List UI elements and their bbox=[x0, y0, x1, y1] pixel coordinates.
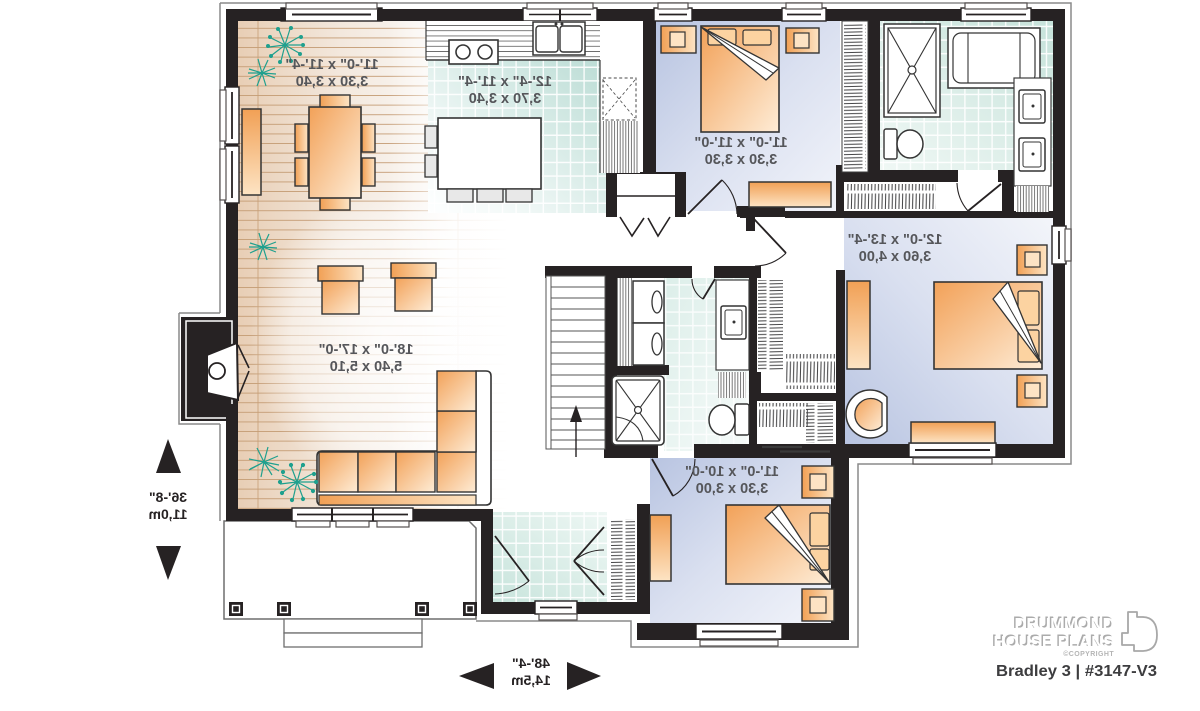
svg-text:3,30 x 3,00: 3,30 x 3,00 bbox=[696, 481, 769, 497]
svg-text:3,30 x 3,30: 3,30 x 3,30 bbox=[705, 152, 778, 168]
svg-text:©COPYRIGHT: ©COPYRIGHT bbox=[1063, 650, 1114, 658]
svg-text:3,30 x 3,40: 3,30 x 3,40 bbox=[296, 74, 369, 90]
svg-text:3,70 x 3,40: 3,70 x 3,40 bbox=[469, 91, 542, 107]
svg-text:HOUSE PLANS: HOUSE PLANS bbox=[994, 633, 1115, 652]
svg-text:18'-0" x 17'-0": 18'-0" x 17'-0" bbox=[319, 342, 414, 358]
svg-text:11,0m: 11,0m bbox=[149, 506, 188, 522]
svg-text:3,60 x 4,00: 3,60 x 4,00 bbox=[859, 249, 932, 265]
svg-text:12'-4" x 11'-4": 12'-4" x 11'-4" bbox=[458, 74, 552, 90]
svg-text:Bradley 3 | #3147-V3: Bradley 3 | #3147-V3 bbox=[996, 663, 1157, 680]
svg-text:14,5m: 14,5m bbox=[511, 672, 551, 688]
svg-text:11'-0" x 11'-4": 11'-0" x 11'-4" bbox=[285, 57, 378, 73]
svg-text:48'-4": 48'-4" bbox=[512, 655, 550, 671]
svg-text:11'-0" x 11'-0": 11'-0" x 11'-0" bbox=[694, 135, 787, 151]
svg-text:5,40 x 5,10: 5,40 x 5,10 bbox=[330, 359, 403, 375]
svg-text:12'-0" x 13'-4": 12'-0" x 13'-4" bbox=[848, 232, 943, 248]
svg-text:36'-8": 36'-8" bbox=[149, 489, 187, 505]
svg-text:11'-0" x 10'-0": 11'-0" x 10'-0" bbox=[685, 464, 779, 480]
